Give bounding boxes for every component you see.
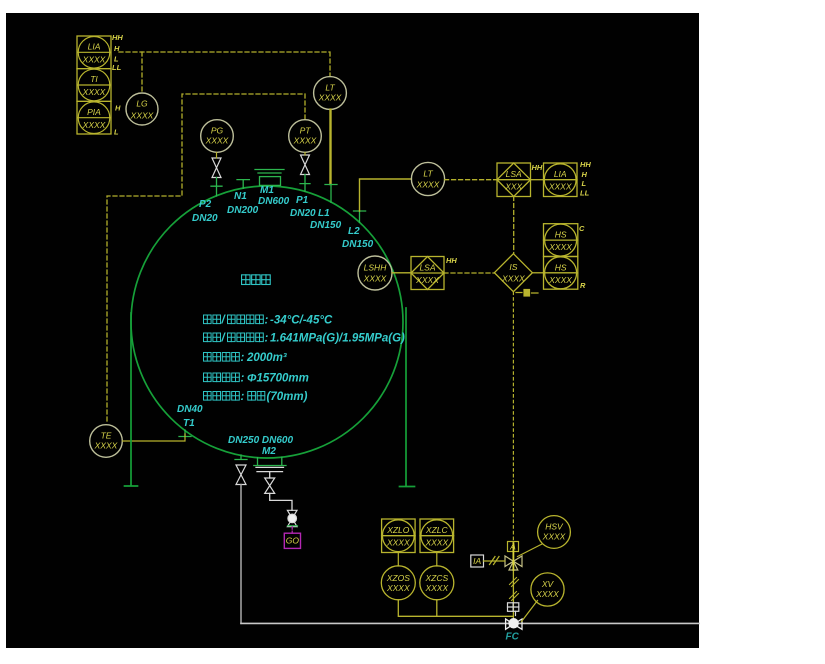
- svg-text:DN200: DN200: [227, 205, 259, 216]
- svg-text::: :: [241, 352, 245, 364]
- svg-text:(70mm): (70mm): [267, 391, 308, 403]
- svg-text:XXXX: XXXX: [386, 583, 410, 593]
- svg-text:IA: IA: [473, 556, 481, 566]
- svg-text:N1: N1: [234, 191, 247, 202]
- svg-text:DN150: DN150: [310, 220, 342, 231]
- svg-text:P1: P1: [296, 195, 309, 206]
- svg-text:LL: LL: [580, 189, 590, 198]
- svg-text:DN250 DN600: DN250 DN600: [228, 435, 293, 446]
- svg-text:LIA: LIA: [554, 169, 567, 179]
- svg-text:XXXX: XXXX: [82, 87, 106, 97]
- svg-text:IS: IS: [509, 262, 517, 272]
- svg-text:HS: HS: [555, 262, 567, 272]
- svg-text:DN20: DN20: [192, 213, 218, 224]
- svg-text:H: H: [582, 170, 588, 179]
- svg-text:XZLO: XZLO: [386, 525, 410, 535]
- svg-text:LG: LG: [136, 99, 148, 109]
- svg-text:DN40: DN40: [177, 404, 203, 415]
- svg-text::: :: [241, 391, 245, 403]
- svg-text:XZOS: XZOS: [386, 573, 410, 583]
- svg-text::: :: [241, 373, 245, 385]
- svg-text:HH: HH: [446, 256, 457, 265]
- svg-text:TE: TE: [101, 431, 112, 441]
- svg-text:XXXX: XXXX: [548, 275, 572, 285]
- svg-text:FC: FC: [506, 632, 520, 643]
- svg-text:XV: XV: [541, 579, 555, 589]
- svg-text:DN20: DN20: [290, 208, 316, 219]
- svg-text:XXXX: XXXX: [415, 275, 439, 285]
- svg-text:-34°C/-45°C: -34°C/-45°C: [270, 315, 333, 327]
- svg-text:XZLC: XZLC: [425, 525, 449, 535]
- svg-text:PIA: PIA: [87, 107, 101, 117]
- svg-text:R: R: [580, 281, 586, 290]
- svg-text:Φ15700mm: Φ15700mm: [247, 373, 309, 385]
- svg-text:XXX: XXX: [504, 182, 522, 192]
- svg-text:XXXX: XXXX: [363, 274, 387, 284]
- svg-text::: :: [265, 315, 269, 327]
- svg-text:HSV: HSV: [545, 522, 564, 532]
- svg-text:LL: LL: [112, 63, 122, 72]
- svg-text:XXXX: XXXX: [416, 180, 440, 190]
- svg-text:LIA: LIA: [88, 42, 101, 52]
- svg-text:LSA: LSA: [419, 262, 435, 272]
- svg-text:T1: T1: [183, 418, 195, 429]
- svg-text:L2: L2: [348, 226, 360, 237]
- svg-text:LSA: LSA: [506, 169, 522, 179]
- svg-text:L1: L1: [318, 208, 330, 219]
- svg-text:P2: P2: [199, 199, 212, 210]
- svg-text:XXXX: XXXX: [130, 111, 154, 121]
- svg-text:XXXX: XXXX: [535, 589, 559, 599]
- svg-text:M1: M1: [260, 185, 274, 196]
- svg-text:XXXX: XXXX: [94, 441, 118, 451]
- svg-text:XXXX: XXXX: [542, 532, 566, 542]
- svg-text:XXXX: XXXX: [82, 120, 106, 130]
- svg-text:PT: PT: [300, 126, 312, 136]
- svg-text:XXXX: XXXX: [205, 136, 229, 146]
- svg-text:XXXX: XXXX: [424, 538, 448, 548]
- svg-text:HH: HH: [580, 160, 591, 169]
- svg-text:XXXX: XXXX: [293, 136, 317, 146]
- svg-text:C: C: [579, 224, 585, 233]
- svg-text:XXXX: XXXX: [548, 242, 572, 252]
- svg-text:LT: LT: [325, 83, 335, 93]
- svg-text:PG: PG: [211, 126, 224, 136]
- svg-text:XXXX: XXXX: [318, 93, 342, 103]
- svg-text:GO: GO: [286, 536, 300, 546]
- svg-text:LT: LT: [423, 169, 433, 179]
- svg-text:XXXX: XXXX: [548, 182, 572, 192]
- svg-text:L: L: [114, 128, 119, 137]
- svg-text:LSHH: LSHH: [364, 263, 388, 273]
- svg-text:M2: M2: [262, 446, 276, 457]
- svg-text::: :: [265, 333, 269, 345]
- svg-text:XXXX: XXXX: [501, 274, 525, 284]
- svg-text:L: L: [582, 179, 587, 188]
- svg-text:XXXX: XXXX: [424, 583, 448, 593]
- svg-text:H: H: [115, 104, 121, 113]
- svg-text:2000m³: 2000m³: [246, 352, 288, 364]
- svg-text:DN600: DN600: [258, 196, 290, 207]
- svg-text:HH: HH: [532, 163, 543, 172]
- svg-text:HH: HH: [112, 33, 123, 42]
- svg-text:1.641MPa(G)/1.95MPa(G): 1.641MPa(G)/1.95MPa(G): [270, 333, 405, 345]
- svg-text:HS: HS: [555, 230, 567, 240]
- svg-text:XXXX: XXXX: [386, 538, 410, 548]
- svg-text:DN150: DN150: [342, 239, 374, 250]
- svg-text:XZCS: XZCS: [424, 573, 448, 583]
- svg-text:XXXX: XXXX: [82, 55, 106, 65]
- svg-text:TI: TI: [90, 74, 98, 84]
